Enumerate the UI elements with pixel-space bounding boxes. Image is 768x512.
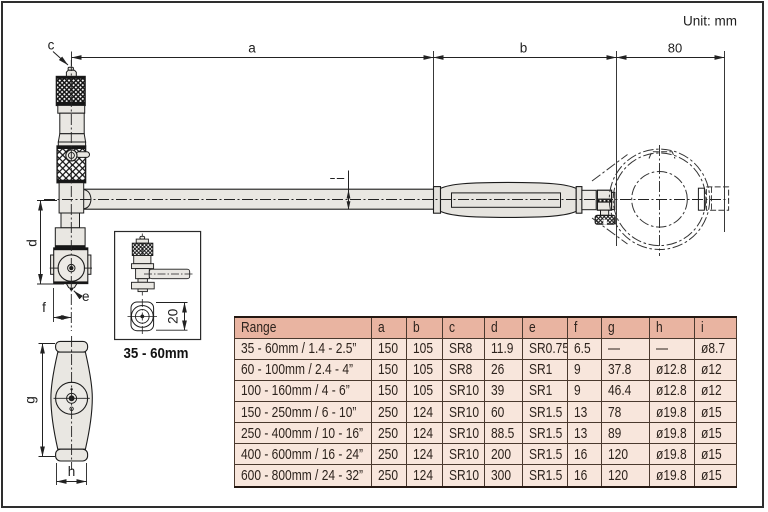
svg-text:80: 80	[668, 41, 682, 56]
svg-text:b: b	[520, 41, 528, 56]
svg-text:20: 20	[166, 309, 181, 324]
svg-text:Unit: mm: Unit: mm	[683, 14, 737, 29]
svg-text:d: d	[25, 239, 40, 247]
svg-text:g: g	[23, 396, 38, 404]
svg-text:c: c	[48, 38, 55, 53]
svg-text:35 - 60mm: 35 - 60mm	[124, 346, 189, 362]
svg-text:f: f	[42, 300, 46, 315]
svg-text:e: e	[82, 289, 90, 304]
svg-text:h: h	[68, 464, 76, 479]
svg-text:a: a	[248, 41, 256, 56]
